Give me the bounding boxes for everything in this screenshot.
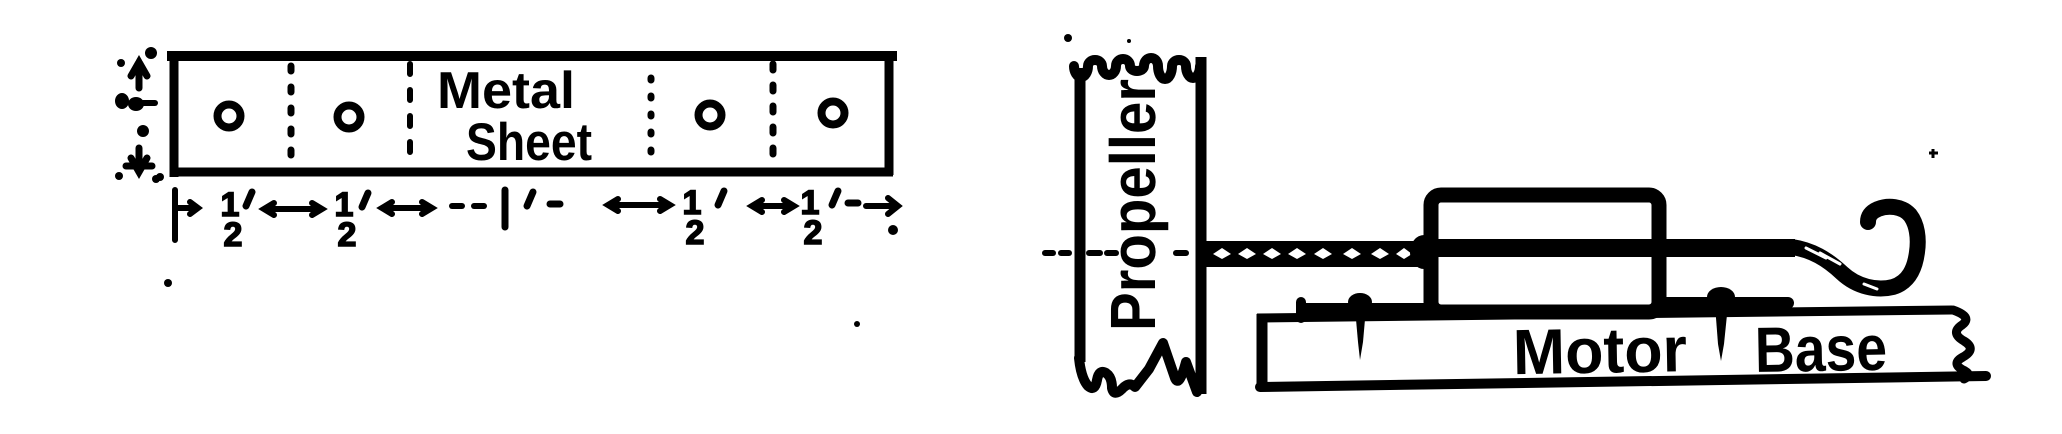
svg-text:Motor: Motor — [1512, 313, 1687, 388]
svg-text:2: 2 — [224, 216, 243, 254]
svg-text:Metal: Metal — [437, 62, 575, 120]
svg-text:Base: Base — [1754, 312, 1887, 386]
svg-text:2: 2 — [804, 214, 823, 252]
svg-text:2: 2 — [686, 214, 705, 252]
svg-text:2: 2 — [338, 216, 357, 254]
svg-text:Sheet: Sheet — [466, 113, 592, 172]
svg-text:Propeller: Propeller — [1097, 79, 1169, 331]
